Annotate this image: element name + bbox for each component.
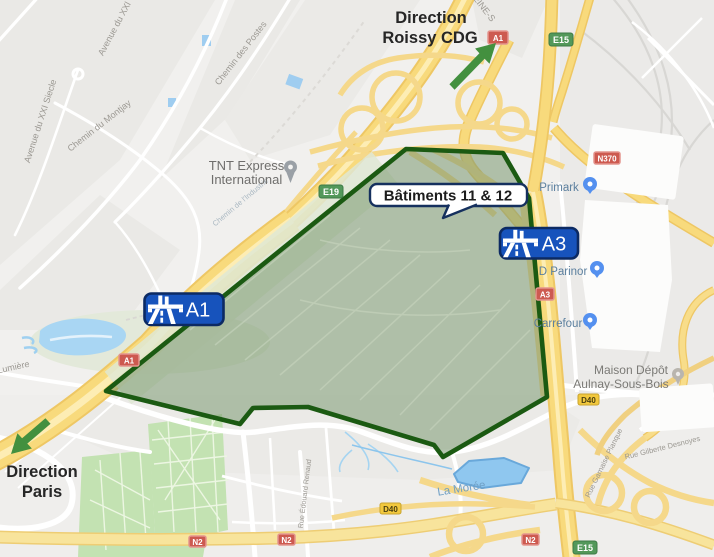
svg-text:Direction: Direction bbox=[395, 9, 467, 27]
svg-text:A3: A3 bbox=[540, 291, 551, 300]
svg-text:Carrefour: Carrefour bbox=[534, 318, 583, 330]
svg-text:E19: E19 bbox=[323, 187, 339, 197]
svg-text:Maison Dépôt: Maison Dépôt bbox=[594, 363, 669, 377]
svg-text:E15: E15 bbox=[553, 35, 569, 45]
svg-text:A1: A1 bbox=[124, 357, 135, 366]
svg-text:Aulnay-Sous-Bois: Aulnay-Sous-Bois bbox=[573, 377, 668, 391]
svg-text:A1: A1 bbox=[493, 34, 504, 43]
svg-text:Roissy CDG: Roissy CDG bbox=[382, 29, 477, 47]
svg-text:Direction: Direction bbox=[6, 463, 78, 481]
svg-text:D40: D40 bbox=[581, 396, 596, 405]
svg-text:E15: E15 bbox=[577, 543, 593, 553]
svg-text:N2: N2 bbox=[192, 538, 203, 547]
svg-text:A1: A1 bbox=[186, 300, 210, 322]
svg-text:A3: A3 bbox=[542, 234, 566, 256]
svg-text:D40: D40 bbox=[383, 505, 398, 514]
svg-text:D Parinor: D Parinor bbox=[539, 266, 588, 278]
svg-text:N370: N370 bbox=[597, 155, 617, 164]
svg-text:International: International bbox=[211, 172, 283, 187]
svg-text:Paris: Paris bbox=[22, 483, 62, 501]
svg-text:Primark: Primark bbox=[539, 182, 579, 194]
svg-text:Bâtiments 11 & 12: Bâtiments 11 & 12 bbox=[384, 188, 512, 205]
svg-text:N2: N2 bbox=[281, 536, 292, 545]
svg-text:N2: N2 bbox=[525, 536, 536, 545]
svg-text:TNT Express: TNT Express bbox=[209, 158, 285, 173]
